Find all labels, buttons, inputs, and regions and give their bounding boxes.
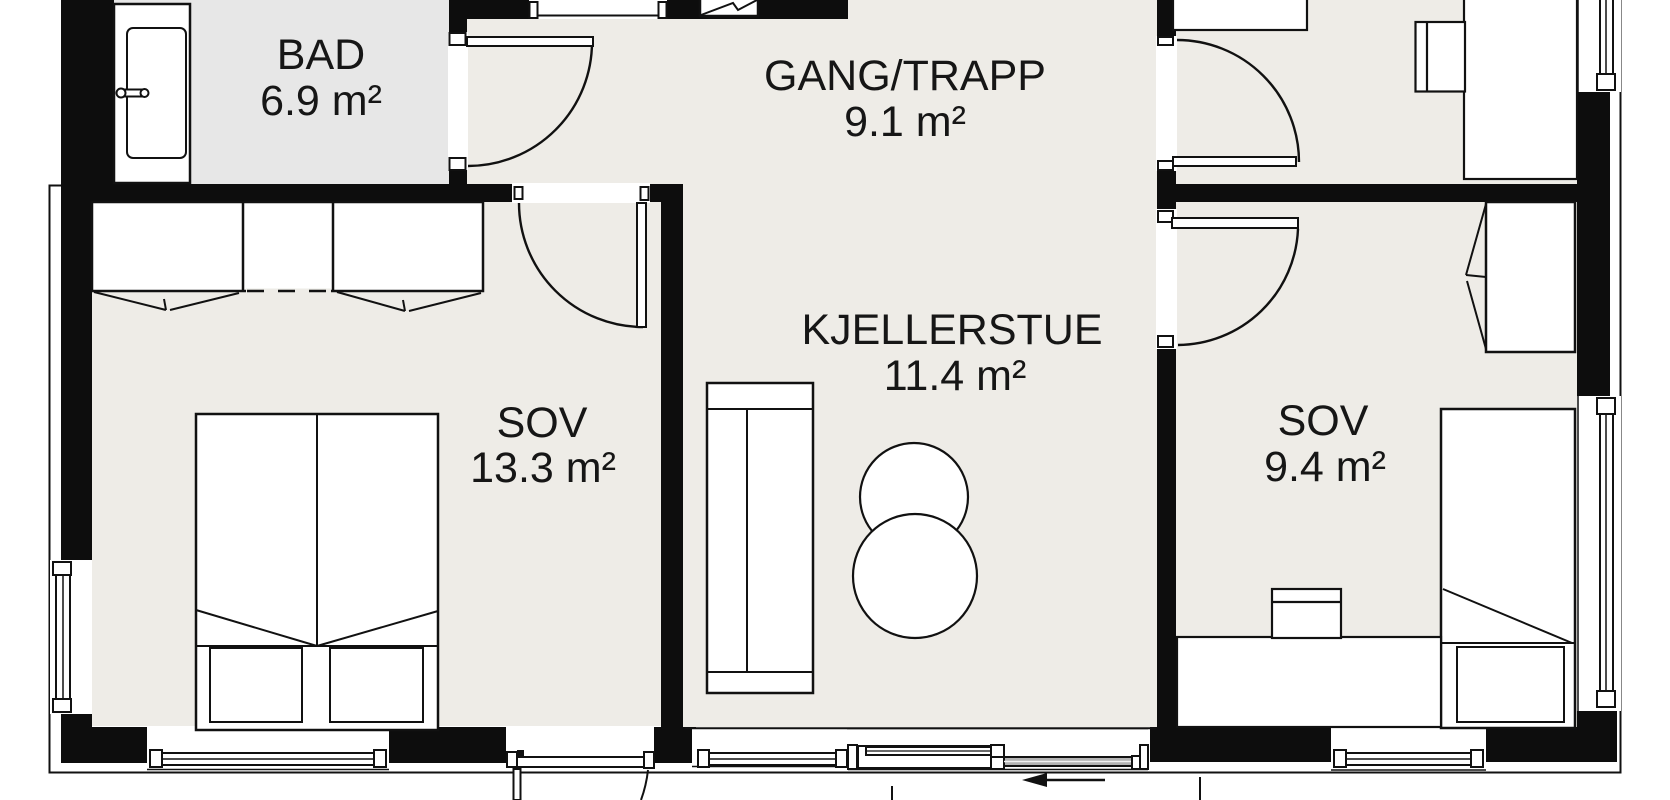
svg-text:GANG/TRAPP: GANG/TRAPP: [764, 52, 1046, 100]
svg-text:KJELLERSTUE: KJELLERSTUE: [801, 306, 1102, 354]
svg-text:SOV: SOV: [1278, 397, 1369, 445]
svg-text:9.4 m²: 9.4 m²: [1264, 443, 1386, 491]
svg-text:6.9 m²: 6.9 m²: [260, 77, 382, 125]
svg-text:BAD: BAD: [277, 31, 365, 79]
svg-text:11.4 m²: 11.4 m²: [884, 352, 1027, 400]
svg-text:9.1 m²: 9.1 m²: [844, 98, 966, 146]
svg-text:SOV: SOV: [497, 399, 588, 447]
svg-text:13.3 m²: 13.3 m²: [470, 444, 616, 492]
